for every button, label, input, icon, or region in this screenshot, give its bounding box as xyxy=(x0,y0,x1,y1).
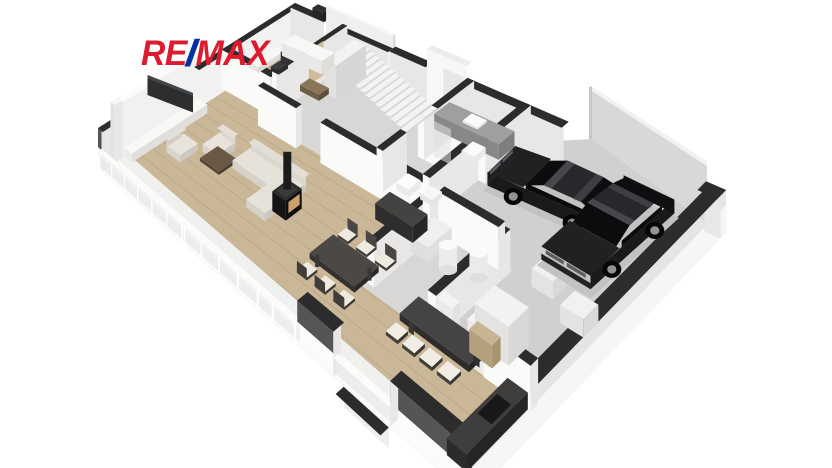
svg-text:RE/MAX: RE/MAX xyxy=(141,34,272,73)
